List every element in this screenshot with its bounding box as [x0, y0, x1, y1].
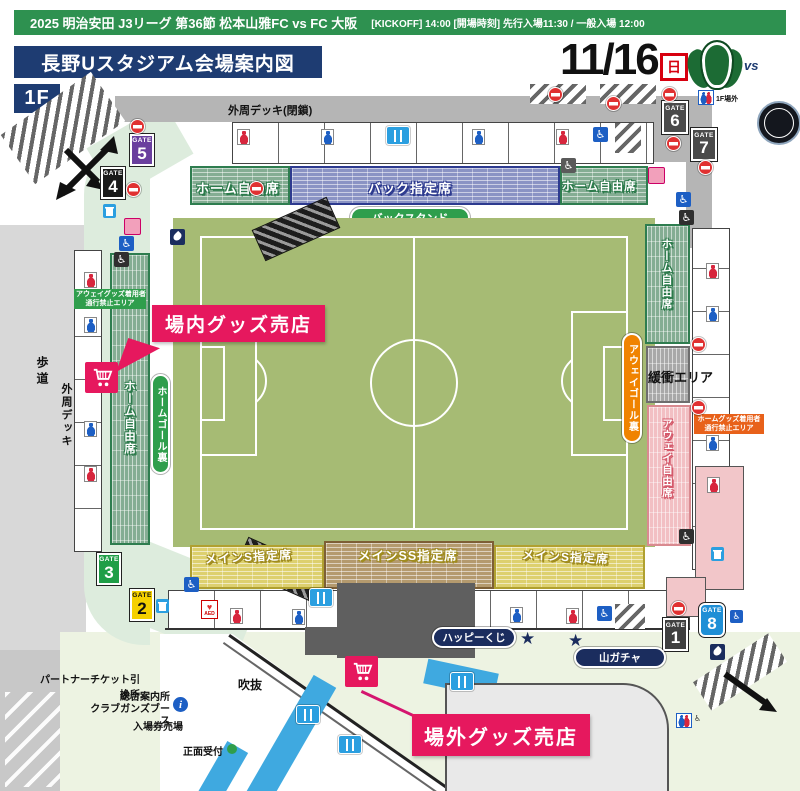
match-date: 11/16 [560, 38, 658, 82]
wheelchair-icon: ♿ [184, 577, 199, 592]
outside-goods-cart-icon [345, 656, 378, 687]
food-stand-icon [386, 126, 410, 145]
exit-arrow-icon [715, 662, 785, 717]
no-entry-icon [671, 601, 686, 616]
female-toilet-icon [84, 272, 97, 288]
ticket-office-label: 入場券売場 [133, 718, 183, 733]
star-icon: ★ [520, 630, 535, 647]
wheelchair-icon: ♿ [676, 192, 691, 207]
main-ss-label: メインSS指定席 [358, 545, 458, 564]
wheelchair-icon: ♿ [694, 714, 701, 723]
male-toilet-icon [472, 129, 485, 145]
no-entry-icon [662, 87, 677, 102]
inside-goods-callout: 場内グッズ売店 [152, 305, 325, 342]
no-entry-icon [130, 119, 145, 134]
food-stand-icon [296, 705, 320, 724]
north-concourse-rooms [232, 122, 654, 164]
restroom-icon [698, 90, 714, 105]
stairs-ne [615, 123, 641, 153]
page-title: 長野Uスタジアム会場案内図 [14, 46, 322, 78]
female-toilet-icon [707, 477, 720, 493]
no-entry-icon [249, 181, 264, 196]
west-home-free-label: ホーム自由席 [121, 380, 137, 455]
wheelchair-icon: ♿ [114, 252, 129, 267]
back-reserved-label: バック指定席 [368, 178, 452, 197]
male-toilet-icon [706, 435, 719, 451]
away-goods-ban-line2: 通行禁止エリア [86, 300, 135, 307]
inside-goods-cart-icon [85, 362, 118, 393]
gate-2: GATE2 [130, 589, 154, 621]
male-toilet-icon [706, 306, 719, 322]
trash-bin-icon [711, 547, 724, 561]
food-stand-icon [338, 735, 362, 754]
back-home-left-label: ホーム自由席 [196, 178, 280, 197]
east-home-free-label: ホーム自由席 [658, 238, 674, 310]
league-title: 2025 明治安田 J3リーグ 第36節 松本山雅FC vs FC 大阪 [30, 13, 357, 32]
wheelchair-icon: ♿ [679, 529, 694, 544]
male-toilet-icon [84, 421, 97, 437]
outside-goods-callout: 場外グッズ売店 [412, 714, 590, 756]
pitch-goal-left [200, 346, 225, 421]
female-toilet-icon [566, 608, 579, 624]
pitch-arc-left [257, 353, 271, 413]
no-entry-icon [126, 182, 141, 197]
wheelchair-icon: ♿ [730, 610, 743, 623]
gate-6: GATE6 [662, 101, 688, 134]
female-toilet-icon [230, 608, 243, 624]
sidewalk-label: 歩道 [34, 356, 51, 388]
trash-bin-icon [156, 599, 169, 613]
smoking-area-icon [170, 229, 185, 245]
female-toilet-icon [84, 466, 97, 482]
yama-gacha-pill: 山ガチャ [574, 647, 666, 668]
no-entry-icon [691, 400, 706, 415]
wheelchair-icon: ♿ [597, 606, 612, 621]
trash-bin-icon [103, 204, 116, 218]
no-entry-icon [691, 337, 706, 352]
outer-deck-label: 外周デッキ [58, 383, 74, 448]
nursing-room-icon [124, 218, 141, 235]
home-goods-ban-line1: ホームグッズ着用者 [698, 416, 761, 423]
restroom-outside-label: 1F場外 [716, 94, 738, 104]
outer-deck-closed-label: 外周デッキ(閉鎖) [228, 102, 312, 118]
no-entry-icon [666, 136, 681, 151]
vs-label: vs [744, 58, 758, 73]
pitch-center-circle [370, 339, 458, 427]
no-entry-icon [698, 160, 713, 175]
pitch [173, 218, 655, 547]
happy-lottery-pill: ハッピーくじ [432, 627, 516, 648]
gate-3: GATE3 [97, 553, 121, 585]
no-entry-icon [606, 96, 621, 111]
away-free-label: アウェイ自由席 [660, 418, 675, 499]
away-goods-ban-label: アウェイグッズ着用者 通行禁止エリア [74, 289, 146, 309]
home-goods-ban-label: ホームグッズ着用者 通行禁止エリア [694, 414, 764, 434]
aed-icon: ♥AED [201, 600, 218, 619]
male-toilet-icon [510, 607, 523, 623]
day-of-week-badge: 日 [660, 53, 688, 81]
front-reception-label: 正面受付 [183, 743, 223, 758]
stadium-guide-page: 2025 明治安田 J3リーグ 第36節 松本山雅FC vs FC 大阪 [KI… [0, 0, 800, 791]
home-goal-back-pill: ホームゴール裏 [151, 374, 170, 474]
male-toilet-icon [321, 129, 334, 145]
front-reception-icon [227, 744, 237, 754]
away-team-logo [757, 101, 800, 145]
info-icon: i [173, 697, 188, 712]
restroom-icon [676, 713, 692, 728]
male-toilet-icon [292, 609, 305, 625]
wheelchair-icon: ♿ [561, 158, 576, 173]
smoking-area-icon [710, 644, 725, 660]
pitch-arc-right [557, 353, 571, 413]
wheelchair-icon: ♿ [679, 210, 694, 225]
main-stand-building-wing [305, 627, 340, 655]
home-goods-ban-line2: 通行禁止エリア [705, 425, 754, 432]
gate-5: GATE5 [130, 134, 154, 166]
female-toilet-icon [556, 129, 569, 145]
food-stand-icon [450, 672, 474, 691]
match-info: [KICKOFF] 14:00 [開場時刻] 先行入場11:30 / 一般入場 … [371, 15, 644, 30]
gate-8: GATE8 [699, 603, 725, 637]
food-stand-icon [309, 588, 333, 607]
away-goods-ban-line1: アウェイグッズ着用者 [76, 291, 146, 298]
stairs-se [615, 604, 645, 629]
female-toilet-icon [706, 263, 719, 279]
home-team-logo [688, 38, 742, 94]
no-entry-icon [548, 87, 563, 102]
male-toilet-icon [84, 317, 97, 333]
wheelchair-icon: ♿ [119, 236, 134, 251]
header-bar: 2025 明治安田 J3リーグ 第36節 松本山雅FC vs FC 大阪 [KI… [14, 10, 786, 35]
gate-1: GATE1 [663, 618, 688, 651]
away-goal-back-pill: アウェイゴール裏 [622, 333, 642, 443]
crest-body [700, 40, 734, 90]
wheelchair-icon: ♿ [593, 127, 608, 142]
female-toilet-icon [237, 129, 250, 145]
nursing-room-icon [648, 167, 665, 184]
gate-4: GATE4 [101, 167, 125, 199]
buffer-area-label: 緩衝エリア [648, 367, 713, 386]
gate-7: GATE7 [691, 128, 717, 161]
atrium-label: 吹抜 [238, 676, 262, 693]
back-home-right-label: ホーム自由席 [562, 178, 637, 194]
